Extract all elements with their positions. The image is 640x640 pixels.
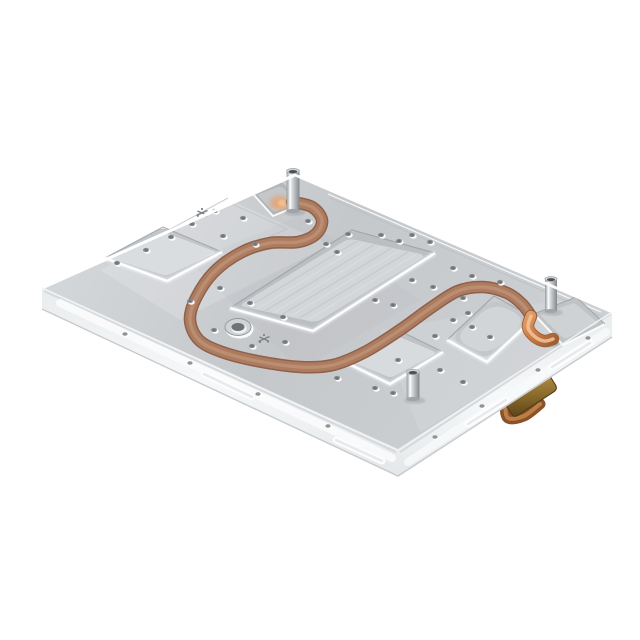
standoff-body [407, 372, 420, 399]
screw-hole-core [221, 235, 224, 237]
screw-hole-core [410, 279, 413, 281]
screw-hole-core [488, 336, 491, 338]
screw-hole-core [451, 267, 454, 269]
screw-hole-core [373, 299, 376, 301]
standoff-base [407, 397, 420, 401]
screw-hole-core [281, 316, 284, 318]
screw-hole-core [391, 392, 394, 394]
screw-hole-core [410, 234, 413, 236]
screw-hole-core [169, 236, 172, 238]
screw-hole-core [241, 217, 244, 219]
photo-layers [0, 0, 640, 640]
screw-hole-core [498, 281, 501, 283]
cold-plate-photo-canvas [0, 0, 640, 640]
counterbore-bore [232, 323, 245, 331]
screw-hole-core [391, 304, 394, 306]
wall-hole [432, 435, 437, 439]
fiducial-dot [263, 334, 265, 336]
fiducial-dot [259, 341, 261, 343]
fiducial-dot [201, 208, 203, 210]
standoff-bore [547, 278, 555, 281]
screw-hole-core [190, 223, 193, 225]
screw-hole-core [461, 381, 464, 383]
screw-hole-core [428, 241, 431, 243]
screw-hole-core [283, 341, 286, 343]
screw-hole-core [346, 233, 349, 235]
wall-hole [585, 336, 590, 340]
screw-hole-core [470, 275, 473, 277]
product-photo [0, 0, 640, 640]
screw-hole-core [306, 220, 309, 222]
screw-hole-core [397, 240, 400, 242]
screw-hole-core [396, 359, 399, 361]
screw-hole-core [379, 234, 382, 236]
screw-hole-core [253, 243, 256, 245]
screw-hole-core [144, 249, 147, 251]
screw-hole-core [188, 300, 191, 302]
wall-hole [187, 361, 192, 365]
screw-hole-core [451, 319, 454, 321]
screw-hole-core [373, 387, 376, 389]
standoff-bore [409, 371, 418, 374]
screw-hole-core [461, 297, 464, 299]
wall-hole [122, 332, 127, 336]
wall-hole [325, 424, 330, 428]
screw-hole-core [335, 377, 338, 379]
standoff-bore [289, 170, 298, 173]
standoff-base [545, 309, 557, 313]
screw-hole-core [335, 251, 338, 253]
screw-hole-core [248, 302, 251, 304]
screw-hole-core [115, 262, 118, 264]
screw-hole-core [433, 335, 436, 337]
screw-hole-core [250, 345, 253, 347]
screw-hole-core [438, 369, 441, 371]
screw-hole-core [212, 329, 215, 331]
screw-hole-core [324, 243, 327, 245]
screw-hole-core [470, 326, 473, 328]
fiducial-dot [267, 340, 269, 342]
wall-hole [535, 368, 540, 372]
screw-hole-core [431, 286, 434, 288]
screw-hole-core [466, 312, 469, 314]
wall-hole [255, 392, 260, 396]
screw-hole-core [218, 287, 221, 289]
standoff-base [287, 209, 300, 213]
wall-hole [479, 404, 484, 408]
